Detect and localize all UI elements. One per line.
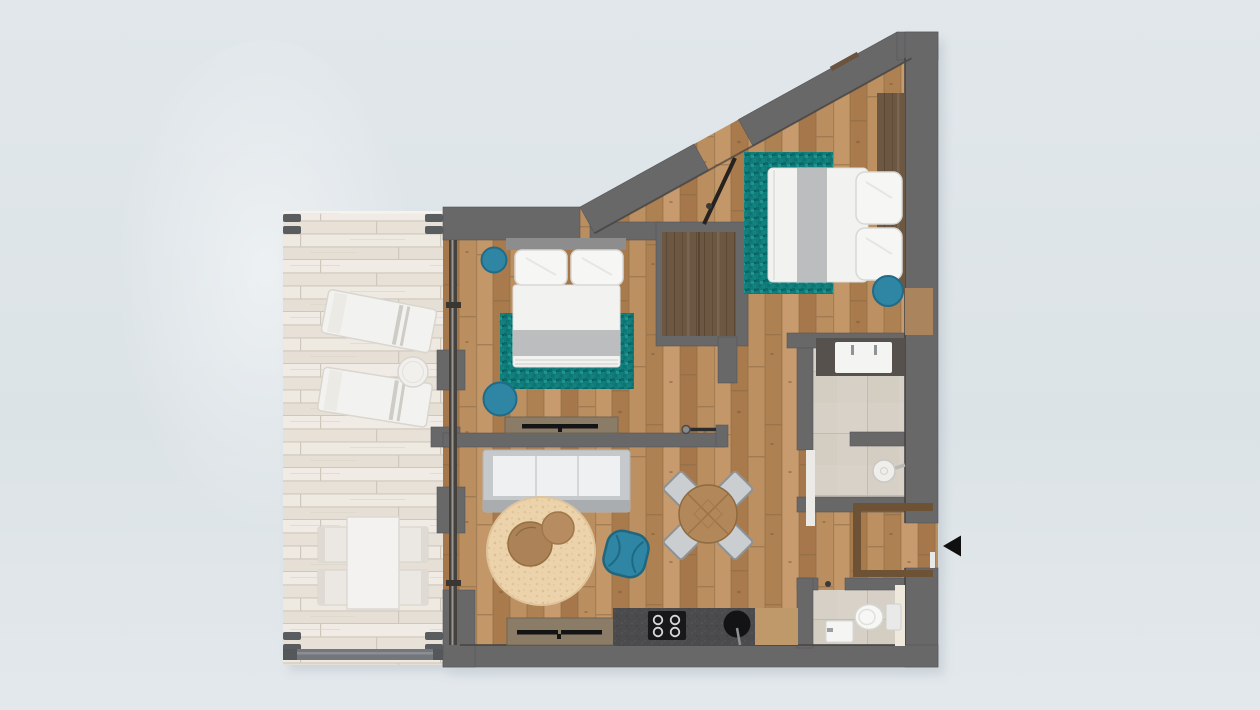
wall-right-upper (905, 32, 938, 523)
kitchen (613, 608, 798, 645)
wc-washbasin (826, 621, 853, 642)
window-mullion (446, 580, 461, 586)
floor-plan-svg (0, 0, 1260, 710)
pillow (856, 228, 902, 280)
wall-end-block (716, 425, 728, 447)
outdoor-chair (318, 527, 349, 562)
bed-runner (513, 330, 620, 356)
wall-top (443, 207, 580, 240)
wall-wc-left (797, 578, 813, 648)
faucet (874, 345, 877, 355)
terrace-top-edge (283, 211, 443, 214)
bedroom2-pouf (873, 276, 903, 306)
tv (517, 630, 558, 635)
wall-niche-shelf (905, 288, 933, 335)
pillow (856, 172, 902, 224)
outdoor-chair (318, 570, 349, 605)
bed-runner (797, 168, 827, 282)
bathroom-door-leaf (806, 450, 815, 526)
bedroom1-tv-console (505, 417, 618, 433)
kitchen-counter-wood (755, 608, 798, 645)
wall-bottom-left-corner (443, 590, 475, 667)
terrace-railing (283, 649, 447, 660)
entry-door-threshold (930, 552, 935, 568)
shower-partition (850, 432, 905, 446)
terrace-side-table (398, 357, 428, 387)
outdoor-chair (397, 570, 428, 605)
wall-bottom (443, 645, 938, 667)
outdoor-chair (397, 527, 428, 562)
bedroom1-pouf-small (482, 248, 507, 273)
window-mullion (446, 302, 461, 308)
cooktop (648, 611, 686, 640)
bed-headboard (506, 238, 626, 250)
bedroom1-pouf-large (484, 383, 517, 416)
wall-corridor-stub (718, 337, 737, 383)
vanity-basin (835, 342, 892, 373)
outdoor-table (347, 517, 399, 609)
bedroom1-bed (506, 238, 626, 367)
terrace (283, 211, 447, 665)
living-tv-console (507, 618, 614, 645)
toilet (855, 604, 901, 630)
tv (522, 424, 598, 429)
faucet (851, 345, 854, 355)
wall-bathroom-left (797, 348, 813, 450)
wall-bedroom1-living (443, 433, 725, 447)
wc-door-handle (825, 581, 831, 587)
coffee-table-small (542, 512, 574, 544)
floor-plan-canvas (0, 0, 1260, 710)
